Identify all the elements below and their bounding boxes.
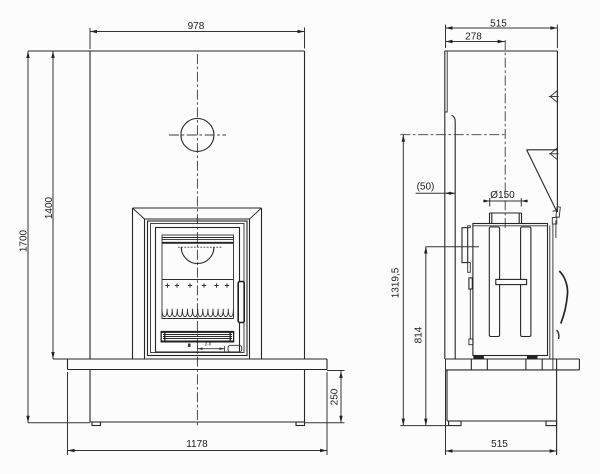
svg-text:1319,5: 1319,5 xyxy=(391,267,402,298)
svg-text:515: 515 xyxy=(490,18,507,29)
svg-text:(50): (50) xyxy=(417,182,435,193)
svg-text:814: 814 xyxy=(414,326,425,343)
svg-text:978: 978 xyxy=(188,21,205,32)
svg-text:Ø150: Ø150 xyxy=(490,190,515,201)
svg-text:250: 250 xyxy=(330,388,341,405)
svg-text:278: 278 xyxy=(465,31,482,42)
svg-text:515: 515 xyxy=(491,439,508,450)
svg-text:1178: 1178 xyxy=(186,439,208,450)
svg-text:2-0: 2-0 xyxy=(205,342,212,347)
svg-text:1700: 1700 xyxy=(18,229,29,252)
svg-text:1400: 1400 xyxy=(44,196,55,219)
